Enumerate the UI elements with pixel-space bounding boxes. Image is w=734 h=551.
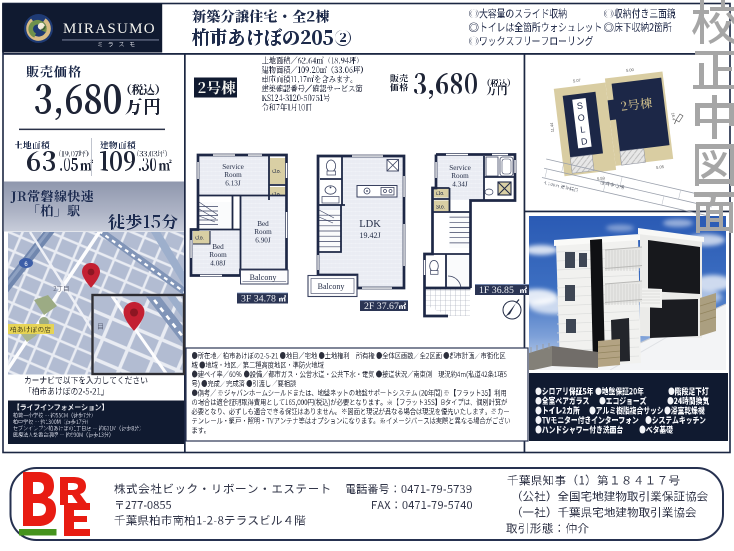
svg-text:Room: Room xyxy=(254,228,272,236)
svg-text:4.08J: 4.08J xyxy=(210,259,226,267)
svg-text:Service: Service xyxy=(222,163,244,171)
svg-text:5.07: 5.07 xyxy=(573,77,582,83)
svg-text:6.13J: 6.13J xyxy=(225,179,241,187)
svg-text:Bed: Bed xyxy=(257,220,269,228)
svg-text:Room: Room xyxy=(451,172,469,180)
svg-text:S: S xyxy=(576,100,583,111)
svg-text:19.42J: 19.42J xyxy=(359,231,380,240)
svg-text:Balcony: Balcony xyxy=(318,282,345,291)
svg-text:MIRASUMO: MIRASUMO xyxy=(63,21,156,37)
svg-text:1F 36.85: 1F 36.85 xyxy=(479,285,514,296)
svg-text:5.00: 5.00 xyxy=(626,67,635,73)
svg-text:LDK: LDK xyxy=(359,219,381,230)
svg-text:3F 34.78: 3F 34.78 xyxy=(241,294,276,305)
svg-text:5.05: 5.05 xyxy=(656,164,665,170)
svg-text:6.90J: 6.90J xyxy=(255,236,271,244)
svg-text:4.34J: 4.34J xyxy=(452,180,468,188)
svg-text:Service: Service xyxy=(449,164,471,172)
svg-text:Balcony: Balcony xyxy=(250,273,277,282)
svg-text:Bed: Bed xyxy=(212,243,224,251)
svg-text:2F 37.67: 2F 37.67 xyxy=(364,301,399,312)
svg-text:Room: Room xyxy=(224,171,242,179)
svg-text:Room: Room xyxy=(209,251,227,259)
svg-text:O: O xyxy=(577,112,585,123)
